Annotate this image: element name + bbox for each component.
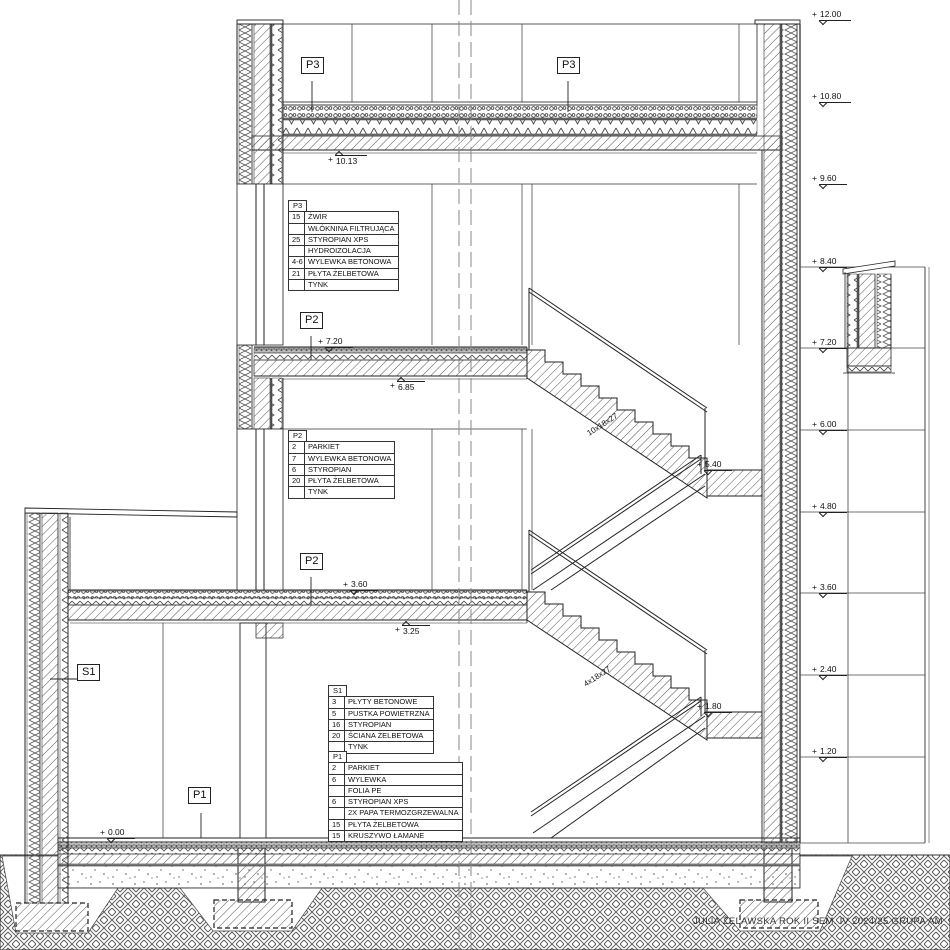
legend-material: HYDROIZOLACJA [305, 246, 399, 257]
building-section-drawing: P315ŻWIRWŁÓKNINA FILTRUJĄCA25STYROPIAN X… [0, 0, 950, 950]
stair-flight-lower [527, 592, 707, 740]
legend-thickness [329, 808, 345, 819]
legend-thickness: 25 [289, 235, 305, 246]
legend-material: PŁYTA ŻELBETOWA [305, 476, 395, 487]
ground-floor-slab [58, 838, 800, 888]
legend-thickness [289, 224, 305, 235]
legend-material: STYROPIAN [345, 720, 434, 731]
level-sign: + [812, 747, 817, 758]
left-wall-window-lower [237, 429, 283, 590]
section-tag-s1: S1 [77, 664, 100, 681]
elevation-marker: +3.60 [343, 580, 378, 594]
legend-material: WŁÓKNINA FILTRUJĄCA [305, 224, 399, 235]
legend-thickness: 5 [329, 709, 345, 720]
elevation-marker: +12.00 [812, 10, 851, 24]
legend-id: S1 [328, 685, 347, 697]
elevation-marker: +8.40 [812, 257, 847, 271]
elevation-marker: +1.80 [697, 702, 732, 716]
legend-thickness [289, 280, 305, 291]
legend-table-s1: S13PŁYTY BETONOWE5PUSTKA POWIETRZNA16STY… [328, 685, 434, 754]
legend-material: STYROPIAN [305, 465, 395, 476]
section-tag-p3-left: P3 [301, 57, 324, 74]
legend-material: PŁYTA ŻELBETOWA [305, 269, 399, 280]
legend-thickness: 15 [329, 831, 345, 842]
legend-material: ŻWIR [305, 212, 399, 223]
legend-thickness: 15 [289, 212, 305, 223]
level-sign: + [812, 502, 817, 513]
legend-material: PŁYTY BETONOWE [345, 697, 434, 708]
stair-landing-lower [707, 712, 762, 738]
legend-thickness: 16 [329, 720, 345, 731]
roof-slab [252, 102, 782, 153]
legend-material: PŁYTA ŻELBETOWA [345, 820, 463, 831]
legend-rows: 2PARKIET6WYLEWKAFOLIA PE6STYROPIAN XPS2X… [328, 762, 463, 842]
legend-thickness [289, 487, 305, 498]
title-block-text: JULIA ŻELAWSKA ROK II SEM. IV 2024/25 GR… [693, 916, 943, 927]
elevation-marker: +2.40 [812, 665, 847, 679]
legend-thickness: 2 [329, 763, 345, 774]
elevation-marker: +3.60 [812, 583, 847, 597]
legend-material: WYLEWKA BETONOWA [305, 454, 395, 465]
section-linework [0, 0, 950, 950]
level-sign: + [343, 580, 348, 591]
legend-thickness [329, 786, 345, 797]
legend-id: P3 [288, 200, 307, 212]
level-sign: + [812, 583, 817, 594]
level-sign: + [812, 174, 817, 185]
legend-thickness: 2 [289, 442, 305, 453]
stair-flight-upper [527, 350, 707, 498]
legend-thickness: 7 [289, 454, 305, 465]
left-exterior-wall [237, 20, 283, 838]
level-sign: + [812, 92, 817, 103]
legend-material: 2X PAPA TERMOZGRZEWALNA [345, 808, 463, 819]
legend-thickness: 20 [289, 476, 305, 487]
elevation-marker: +10.80 [812, 92, 851, 106]
legend-material: WYLEWKA [345, 775, 463, 786]
legend-thickness [289, 246, 305, 257]
section-tag-p2-upper: P2 [300, 312, 323, 329]
legend-material: ŚCIANA ŻELBETOWA [345, 731, 434, 742]
level-sign: + [318, 337, 323, 348]
legend-table-p1: P12PARKIET6WYLEWKAFOLIA PE6STYROPIAN XPS… [328, 751, 463, 842]
legend-thickness: 6 [329, 775, 345, 786]
legend-material: PARKIET [345, 763, 463, 774]
legend-table-p3: P315ŻWIRWŁÓKNINA FILTRUJĄCA25STYROPIAN X… [288, 200, 399, 291]
legend-material: KRUSZYWO ŁAMANE [345, 831, 463, 842]
stair-landing-upper [707, 470, 762, 496]
upper-floor-slab [254, 347, 527, 379]
legend-thickness: 20 [329, 731, 345, 742]
level-sign: + [697, 460, 702, 471]
legend-thickness: 21 [289, 269, 305, 280]
level-sign: + [812, 257, 817, 268]
elevation-marker: +6.00 [812, 420, 847, 434]
elevation-marker: +7.20 [318, 337, 353, 351]
legend-id: P2 [288, 430, 307, 442]
legend-material: TYNK [305, 487, 395, 498]
level-sign: + [390, 381, 395, 392]
left-wall-window-upper [237, 184, 283, 345]
legend-rows: 2PARKIET7WYLEWKA BETONOWA6STYROPIAN20PŁY… [288, 441, 395, 498]
elevation-marker: +6.85 [390, 378, 425, 392]
section-tag-p2-lower: P2 [300, 553, 323, 570]
level-sign: + [328, 155, 333, 166]
legend-material: STYROPIAN XPS [305, 235, 399, 246]
elevation-marker: +9.60 [812, 174, 847, 188]
legend-material: TYNK [305, 280, 399, 291]
parapet-detail [843, 261, 895, 373]
elevation-marker: +10.13 [328, 152, 367, 166]
legend-material: STYROPIAN XPS [345, 797, 463, 808]
legend-rows: 15ŻWIRWŁÓKNINA FILTRUJĄCA25STYROPIAN XPS… [288, 211, 399, 291]
ground-floor-column [240, 623, 266, 838]
elevation-marker: +0.00 [100, 828, 135, 842]
legend-thickness: 15 [329, 820, 345, 831]
legend-material: PARKIET [305, 442, 395, 453]
lower-floor-slab [68, 590, 527, 623]
level-sign: + [812, 665, 817, 676]
staircase [527, 288, 762, 838]
elevation-marker: +5.40 [697, 460, 732, 474]
legend-thickness: 6 [289, 465, 305, 476]
level-sign: + [395, 625, 400, 636]
legend-material: WYLEWKA BETONOWA [305, 257, 399, 268]
legend-material: FOLIA PE [345, 786, 463, 797]
legend-thickness: 3 [329, 697, 345, 708]
elevation-marker: +3.25 [395, 622, 430, 636]
legend-thickness: 4-6 [289, 257, 305, 268]
legend-material: PUSTKA POWIETRZNA [345, 709, 434, 720]
elevation-marker: +7.20 [812, 338, 847, 352]
level-sign: + [697, 702, 702, 713]
section-tag-p1: P1 [188, 787, 211, 804]
legend-thickness: 6 [329, 797, 345, 808]
section-tag-p3-right: P3 [557, 57, 580, 74]
legend-id: P1 [328, 751, 347, 763]
level-sign: + [812, 10, 817, 21]
legend-table-p2: P22PARKIET7WYLEWKA BETONOWA6STYROPIAN20P… [288, 430, 395, 499]
elevation-marker: +4.80 [812, 502, 847, 516]
level-sign: + [812, 420, 817, 431]
elevation-marker: +1.20 [812, 747, 847, 761]
legend-rows: 3PŁYTY BETONOWE5PUSTKA POWIETRZNA16STYRO… [328, 696, 434, 753]
level-sign: + [100, 828, 105, 839]
level-sign: + [812, 338, 817, 349]
